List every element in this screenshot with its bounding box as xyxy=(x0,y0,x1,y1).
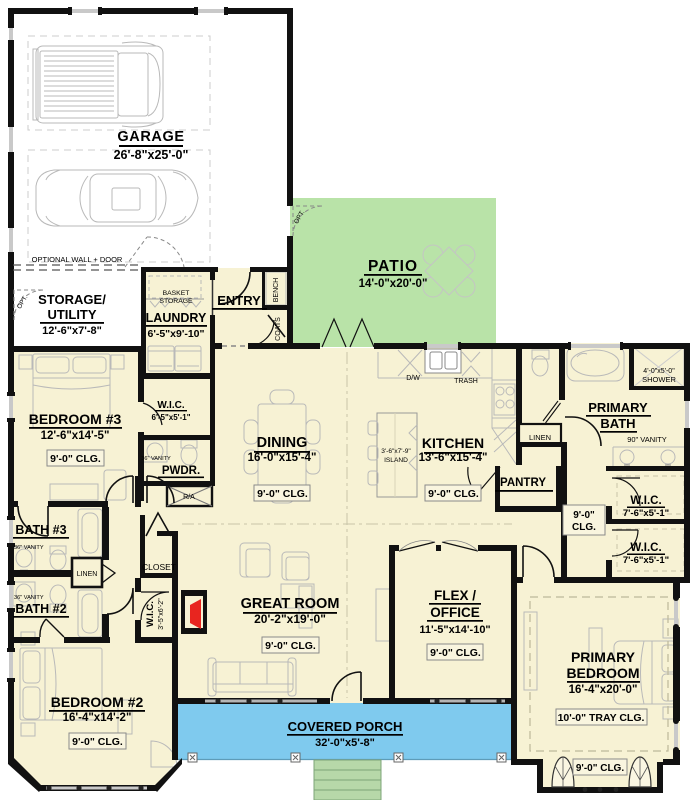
svg-text:PANTRY: PANTRY xyxy=(500,477,546,489)
svg-text:11'-5"x14'-10": 11'-5"x14'-10" xyxy=(419,624,490,636)
svg-text:STORAGE/: STORAGE/ xyxy=(38,292,106,307)
svg-text:W.I.C.: W.I.C. xyxy=(630,495,661,507)
svg-text:GARAGE: GARAGE xyxy=(117,129,184,145)
svg-text:OPTIONAL WALL + DOOR: OPTIONAL WALL + DOOR xyxy=(32,255,123,264)
svg-text:7'-6"x5'-1": 7'-6"x5'-1" xyxy=(623,508,669,519)
svg-text:BEDROOM #3: BEDROOM #3 xyxy=(29,411,122,427)
svg-text:TRASH: TRASH xyxy=(454,378,478,385)
svg-text:COATS: COATS xyxy=(275,317,282,341)
svg-text:12'-6"x14'-5": 12'-6"x14'-5" xyxy=(41,430,110,442)
svg-text:26'-8"x25'-0": 26'-8"x25'-0" xyxy=(114,148,189,162)
svg-text:20'-2"x19'-0": 20'-2"x19'-0" xyxy=(254,612,326,626)
svg-text:BASKET: BASKET xyxy=(163,290,190,297)
svg-text:BATH #3: BATH #3 xyxy=(15,523,66,537)
svg-text:BENCH: BENCH xyxy=(273,278,280,303)
svg-text:36" VANITY: 36" VANITY xyxy=(141,456,171,462)
svg-text:COVERED PORCH: COVERED PORCH xyxy=(288,719,403,734)
svg-text:9'-0" CLG.: 9'-0" CLG. xyxy=(576,763,624,774)
svg-text:36" VANITY: 36" VANITY xyxy=(14,545,44,551)
svg-text:13'-6"x15'-4": 13'-6"x15'-4" xyxy=(419,452,488,464)
svg-text:9'-0" CLG.: 9'-0" CLG. xyxy=(428,488,479,500)
svg-text:CLG.: CLG. xyxy=(572,522,596,533)
svg-text:ENTRY: ENTRY xyxy=(217,293,261,308)
svg-text:CLOSET: CLOSET xyxy=(142,562,176,572)
svg-text:KITCHEN: KITCHEN xyxy=(422,435,484,451)
svg-text:PRIMARY: PRIMARY xyxy=(571,649,636,665)
svg-text:14'-0"x20'-0": 14'-0"x20'-0" xyxy=(359,278,428,290)
svg-text:DINING: DINING xyxy=(257,435,308,451)
svg-text:LAUNDRY: LAUNDRY xyxy=(146,311,207,325)
svg-text:W.I.C.: W.I.C. xyxy=(630,542,661,554)
svg-text:3'-6"x7'-9": 3'-6"x7'-9" xyxy=(381,448,411,455)
svg-text:4'-0"x5'-0": 4'-0"x5'-0" xyxy=(643,368,675,375)
svg-text:W.I.C.: W.I.C. xyxy=(145,601,156,627)
svg-text:9'-0" CLG.: 9'-0" CLG. xyxy=(265,640,316,652)
svg-text:9'-0" CLG.: 9'-0" CLG. xyxy=(72,736,123,748)
svg-text:9'-0" CLG.: 9'-0" CLG. xyxy=(430,647,481,659)
svg-text:PRIMARY: PRIMARY xyxy=(588,400,648,415)
svg-text:6'-5"x5'-1": 6'-5"x5'-1" xyxy=(152,413,191,422)
svg-text:7'-6"x5'-1": 7'-6"x5'-1" xyxy=(623,555,669,566)
svg-text:STORAGE: STORAGE xyxy=(159,298,193,305)
svg-text:6'-5"x9'-10": 6'-5"x9'-10" xyxy=(148,328,205,340)
svg-text:R/A: R/A xyxy=(183,494,195,501)
svg-text:OFFICE: OFFICE xyxy=(430,605,480,620)
svg-text:LINEN: LINEN xyxy=(529,433,551,442)
svg-text:36" VANITY: 36" VANITY xyxy=(14,595,44,601)
svg-text:FLEX /: FLEX / xyxy=(434,588,476,603)
svg-text:PWDR.: PWDR. xyxy=(162,465,200,477)
svg-text:16'-0"x15'-4": 16'-0"x15'-4" xyxy=(248,452,317,464)
svg-text:12'-6"x7'-8": 12'-6"x7'-8" xyxy=(42,325,102,337)
svg-text:ISLAND: ISLAND xyxy=(384,457,408,464)
svg-text:W.I.C.: W.I.C. xyxy=(157,400,184,411)
svg-text:BEDROOM #2: BEDROOM #2 xyxy=(51,694,144,710)
svg-text:16'-4"x20'-0": 16'-4"x20'-0" xyxy=(569,684,638,696)
svg-text:GREAT ROOM: GREAT ROOM xyxy=(241,596,340,612)
svg-text:LINEN: LINEN xyxy=(77,571,98,578)
svg-text:32'-0"x5'-8": 32'-0"x5'-8" xyxy=(315,737,375,749)
svg-text:SHOWER: SHOWER xyxy=(642,375,676,384)
svg-text:9'-0" CLG.: 9'-0" CLG. xyxy=(257,488,308,500)
svg-text:BATH #2: BATH #2 xyxy=(15,602,66,616)
svg-text:UTILITY: UTILITY xyxy=(47,307,96,322)
svg-text:PATIO: PATIO xyxy=(368,258,418,275)
svg-text:BEDROOM: BEDROOM xyxy=(566,665,639,681)
svg-text:9'-0": 9'-0" xyxy=(573,510,595,521)
svg-text:90" VANITY: 90" VANITY xyxy=(627,435,667,444)
svg-text:D/W: D/W xyxy=(406,375,420,382)
svg-text:BATH: BATH xyxy=(600,416,635,431)
svg-text:16'-4"x14'-2": 16'-4"x14'-2" xyxy=(63,712,132,724)
svg-text:3'-5"x6'-2": 3'-5"x6'-2" xyxy=(158,598,165,630)
svg-text:9'-0" CLG.: 9'-0" CLG. xyxy=(50,453,101,465)
svg-text:10'-0" TRAY CLG.: 10'-0" TRAY CLG. xyxy=(558,712,645,724)
